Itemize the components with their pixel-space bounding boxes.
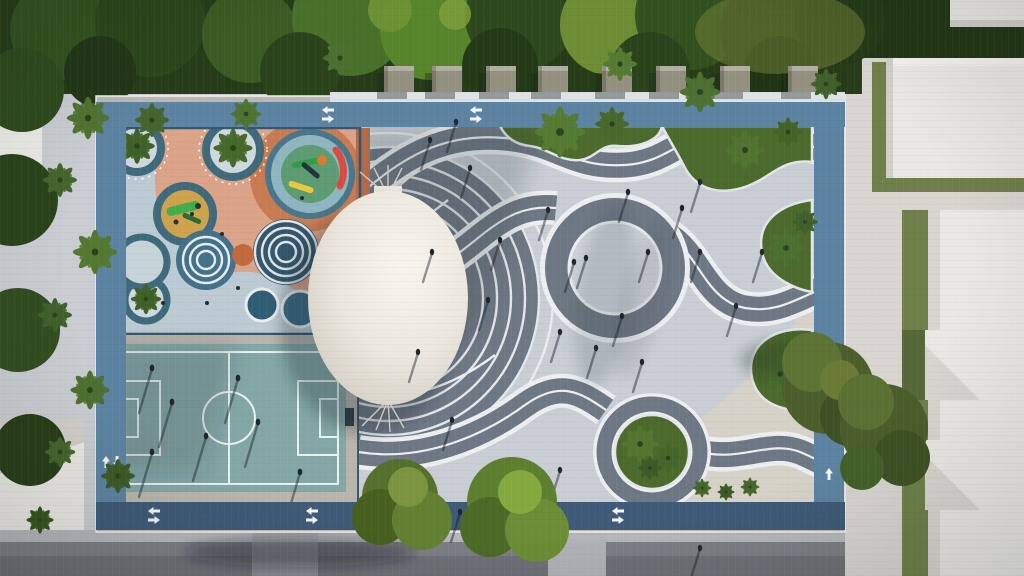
bike-lane-west [96,102,126,502]
playground-spinner [268,132,352,216]
east-building-lower [902,210,1024,576]
scene-canvas [0,0,1024,576]
east-building-upper [872,58,1024,192]
aerial-park-render [0,0,1024,576]
hedge [872,62,886,192]
bike-lane-north [96,102,845,127]
east-block [845,0,1024,576]
hedge [872,176,1024,192]
palm-tree [213,128,252,167]
bike-lane-east [814,127,844,505]
palm-tree [131,284,162,315]
